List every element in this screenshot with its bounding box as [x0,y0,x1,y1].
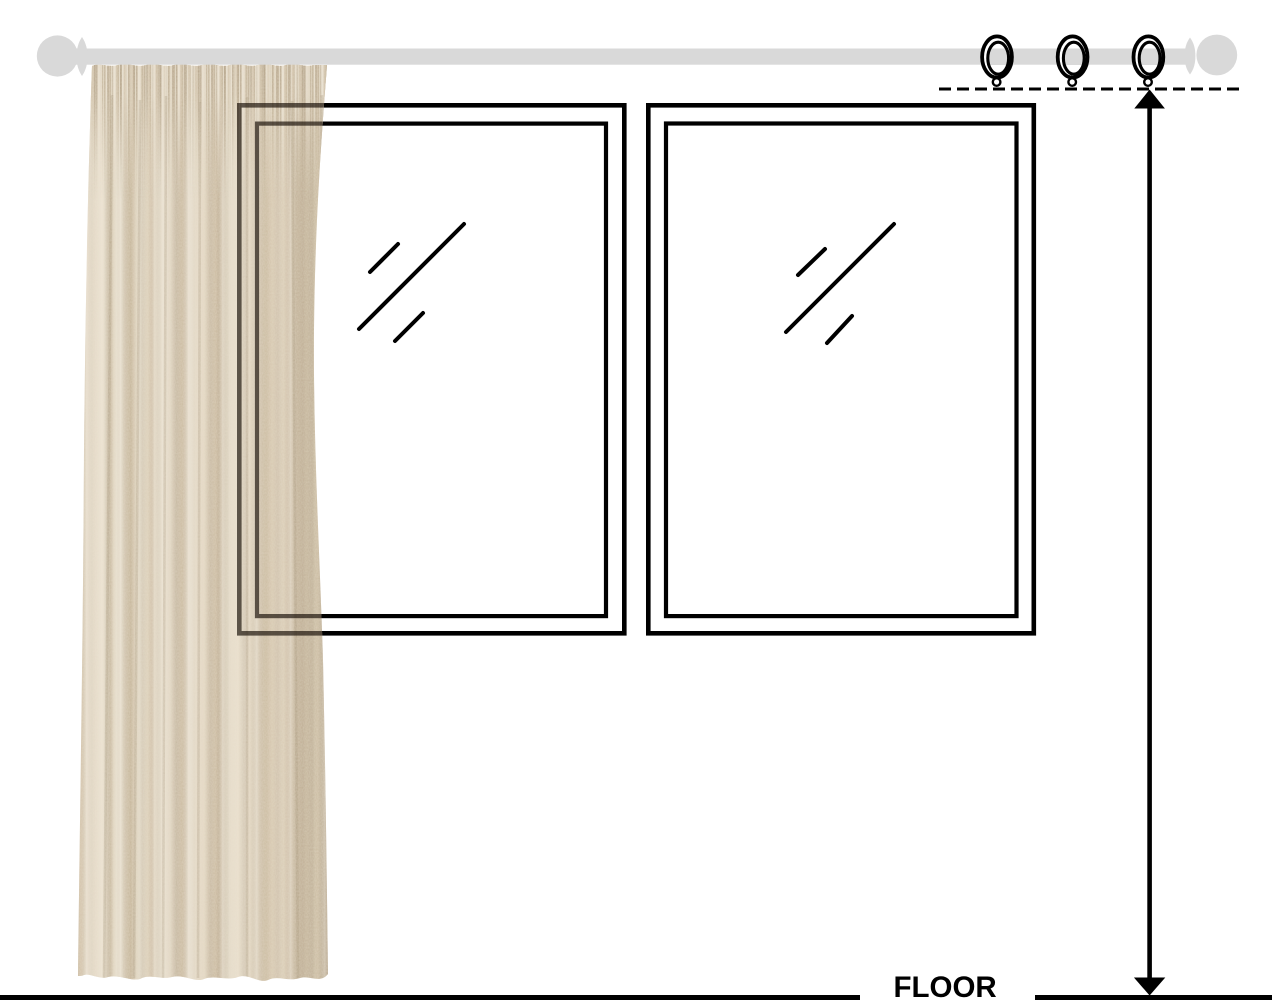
svg-text:FLOOR: FLOOR [894,971,997,1000]
